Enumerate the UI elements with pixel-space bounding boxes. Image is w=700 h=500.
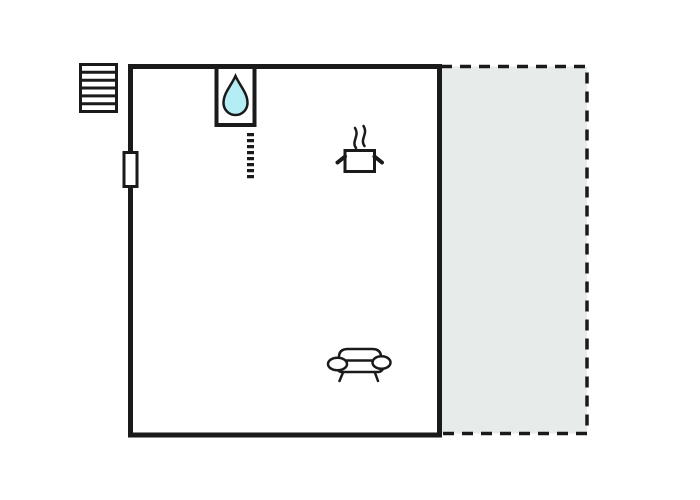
sink-unit xyxy=(217,67,255,125)
main-room-walls xyxy=(131,67,440,436)
floor-plan xyxy=(0,0,700,500)
sofa-armrest-left xyxy=(328,358,347,371)
floor-plan-canvas xyxy=(0,0,700,500)
pot-body xyxy=(345,151,375,172)
door-icon xyxy=(124,153,137,187)
terrace-area xyxy=(441,67,587,434)
stairs-icon xyxy=(81,65,117,112)
sofa-armrest-right xyxy=(373,356,391,369)
